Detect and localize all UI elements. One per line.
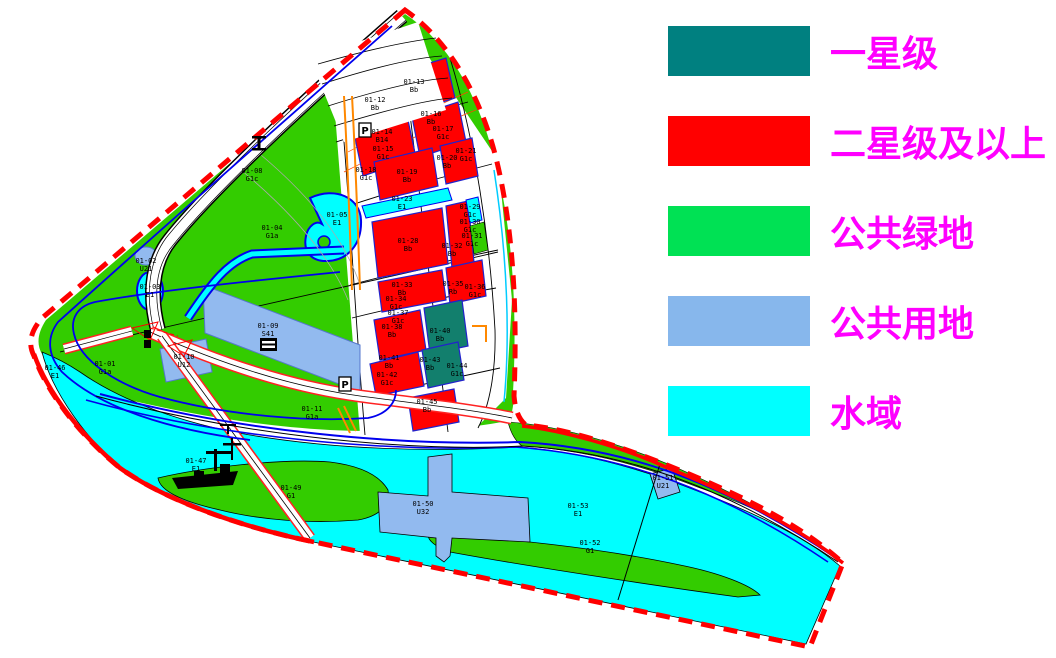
legend: 一星级 二星级及以上 公共绿地 公共用地 水域 [668, 26, 1046, 436]
parking-icon-2: P [339, 377, 351, 391]
legend-row-public-green: 公共绿地 [668, 206, 1046, 256]
one-star-label: 一星级 [830, 25, 938, 77]
public-green-swatch [668, 206, 810, 256]
water-label: 水域 [830, 385, 902, 437]
legend-row-one-star: 一星级 [668, 26, 1046, 76]
parking-icon: P [359, 123, 371, 137]
svg-text:P: P [361, 126, 368, 137]
public-land-swatch [668, 296, 810, 346]
water-swatch [668, 386, 810, 436]
two-star-label: 二星级及以上 [830, 115, 1046, 167]
legend-row-water: 水域 [668, 386, 1046, 436]
public-green-label: 公共绿地 [830, 205, 974, 257]
two-star-swatch [668, 116, 810, 166]
station-icon [260, 338, 277, 351]
one-star-swatch [668, 26, 810, 76]
svg-text:P: P [341, 380, 348, 391]
legend-row-public-land: 公共用地 [668, 296, 1046, 346]
legend-row-two-star: 二星级及以上 [668, 116, 1046, 166]
public-land-label: 公共用地 [830, 295, 974, 347]
planning-map-page: P P 01-01G1a01- [0, 0, 1056, 658]
